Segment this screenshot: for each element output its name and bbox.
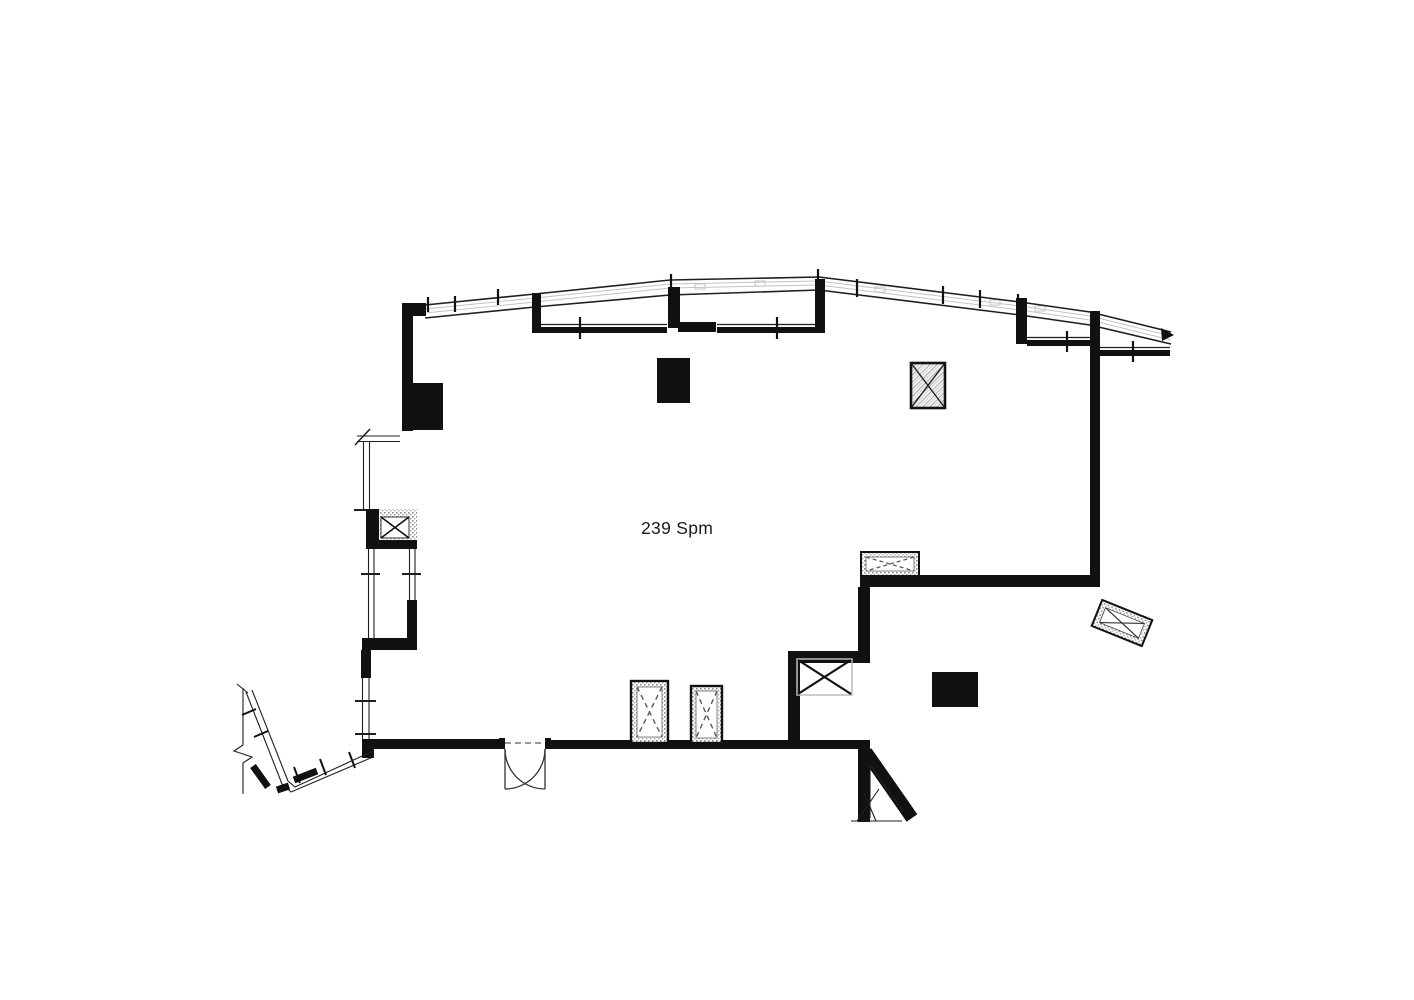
wall-left-lower-segment (361, 650, 371, 678)
column-interior-solid (657, 358, 690, 403)
shaft-wall-right-segment (407, 600, 417, 640)
column-north-2 (668, 287, 680, 328)
door-jamb-right (545, 738, 551, 749)
column-hatched (911, 363, 945, 408)
wall-bottom-left (362, 739, 499, 749)
angled-bay (234, 684, 373, 794)
area-label: 239 Spm (641, 518, 713, 539)
walls-and-columns (361, 279, 1100, 822)
column-interior-solid-2 (932, 672, 978, 707)
floor-plan-canvas: 239 Spm (0, 0, 1414, 1000)
column-north-2-arm (678, 322, 716, 332)
entry-door (505, 743, 545, 789)
column-north-3 (815, 279, 825, 333)
floor-plan-drawing (0, 0, 1414, 1000)
duct-box-rotated (1092, 600, 1153, 646)
alcove-cross-box (797, 659, 852, 695)
window-sills (541, 325, 1170, 357)
shaft-wall-bar (362, 638, 417, 650)
wall-left-block (411, 383, 443, 430)
duct-box-on-wall (861, 552, 919, 576)
left-thin-walls (354, 429, 421, 739)
elevator-1 (631, 681, 668, 743)
wall-right (1090, 311, 1100, 587)
shaft-box-left (366, 509, 417, 549)
wall-step-vertical-2 (788, 651, 800, 748)
elevator-2 (691, 686, 722, 743)
column-north-4 (1016, 298, 1027, 344)
column-north-1 (532, 293, 541, 333)
door-jamb-left (499, 738, 505, 749)
